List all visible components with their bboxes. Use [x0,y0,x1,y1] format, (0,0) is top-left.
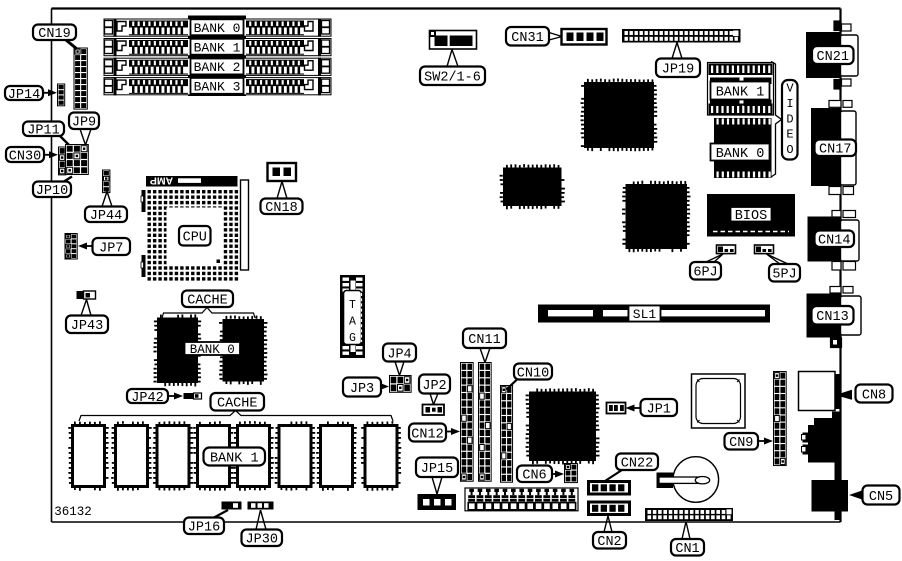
svg-text:V: V [786,82,794,96]
svg-text:JP15: JP15 [421,462,453,477]
svg-text:6PJ: 6PJ [693,266,717,281]
svg-text:JP19: JP19 [662,63,694,78]
svg-text:CN19: CN19 [38,27,70,42]
svg-text:BANK 1: BANK 1 [716,85,765,100]
svg-text:CN1: CN1 [675,542,699,557]
svg-text:JP11: JP11 [27,124,59,139]
svg-text:BANK 2: BANK 2 [194,60,241,75]
svg-text:CN9: CN9 [729,436,753,451]
svg-text:CN13: CN13 [816,310,848,325]
svg-text:36132: 36132 [54,505,92,519]
svg-text:D: D [786,112,793,126]
svg-text:CN22: CN22 [621,457,653,472]
svg-text:CPU: CPU [183,231,207,246]
svg-text:JP42: JP42 [131,391,163,406]
svg-text:JP3: JP3 [350,382,374,397]
svg-text:BANK 1: BANK 1 [194,40,241,55]
svg-text:CN10: CN10 [517,366,549,381]
svg-text:BIOS: BIOS [735,209,767,224]
svg-text:JP1: JP1 [647,402,671,417]
svg-text:CN31: CN31 [511,31,543,46]
svg-text:JP2: JP2 [422,379,446,394]
svg-text:JP44: JP44 [90,209,122,224]
svg-text:JP7: JP7 [99,241,123,256]
svg-text:JP30: JP30 [246,533,278,548]
svg-text:CACHE: CACHE [217,397,258,412]
svg-text:CN14: CN14 [818,234,850,249]
svg-text:CN17: CN17 [819,143,851,158]
svg-text:CN5: CN5 [869,490,893,505]
svg-text:CN30: CN30 [9,149,41,164]
svg-text:BANK 3: BANK 3 [194,80,241,95]
svg-text:JP9: JP9 [72,116,96,131]
svg-text:CN12: CN12 [411,427,443,442]
svg-text:JP43: JP43 [71,319,103,334]
svg-text:G: G [349,332,356,345]
svg-text:A: A [349,316,356,329]
svg-text:BANK 0: BANK 0 [194,21,241,36]
svg-text:CN6: CN6 [522,469,546,484]
svg-text:SL1: SL1 [633,307,657,322]
svg-text:BANK 1: BANK 1 [210,451,259,466]
svg-text:JP10: JP10 [36,184,68,199]
svg-text:JP4: JP4 [387,347,411,362]
svg-text:JP16: JP16 [188,521,220,536]
svg-text:BANK 0: BANK 0 [716,147,765,162]
svg-text:CN8: CN8 [862,388,886,403]
svg-text:SW2/1-6: SW2/1-6 [424,71,481,86]
svg-text:JP14: JP14 [8,88,40,103]
svg-text:CN11: CN11 [468,333,500,348]
svg-text:E: E [786,128,793,142]
svg-text:CN2: CN2 [597,535,621,550]
svg-text:CN18: CN18 [265,201,297,216]
svg-text:O: O [786,143,793,157]
svg-text:BANK 0: BANK 0 [190,343,235,357]
svg-text:I: I [786,97,793,111]
svg-text:CN21: CN21 [817,50,849,65]
svg-text:CACHE: CACHE [187,294,228,309]
svg-text:T: T [349,299,356,312]
svg-text:AMP: AMP [150,174,173,186]
svg-text:5PJ: 5PJ [772,268,796,283]
